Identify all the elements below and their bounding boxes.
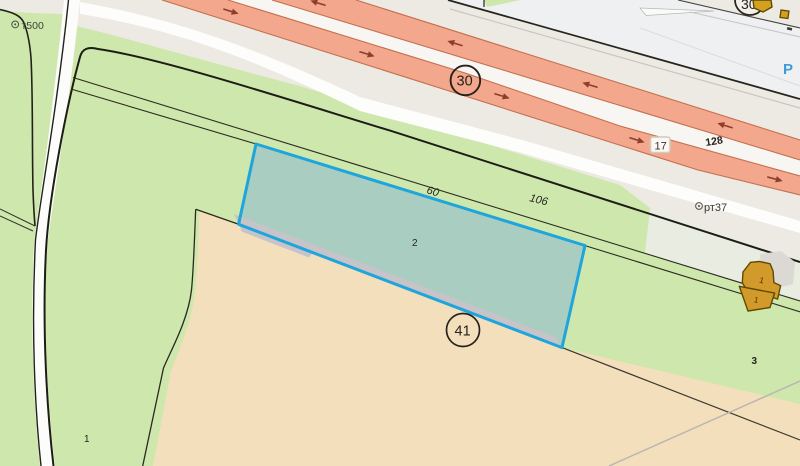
svg-text:41: 41 [455, 324, 471, 340]
svg-text:3: 3 [752, 356, 758, 367]
svg-text:2: 2 [412, 238, 418, 249]
svg-text:т500: т500 [22, 20, 44, 32]
svg-text:17: 17 [655, 141, 667, 153]
svg-text:рт37: рт37 [704, 202, 727, 214]
svg-text:30: 30 [457, 74, 473, 90]
svg-text:Р: Р [783, 61, 793, 78]
svg-text:1: 1 [84, 434, 90, 445]
